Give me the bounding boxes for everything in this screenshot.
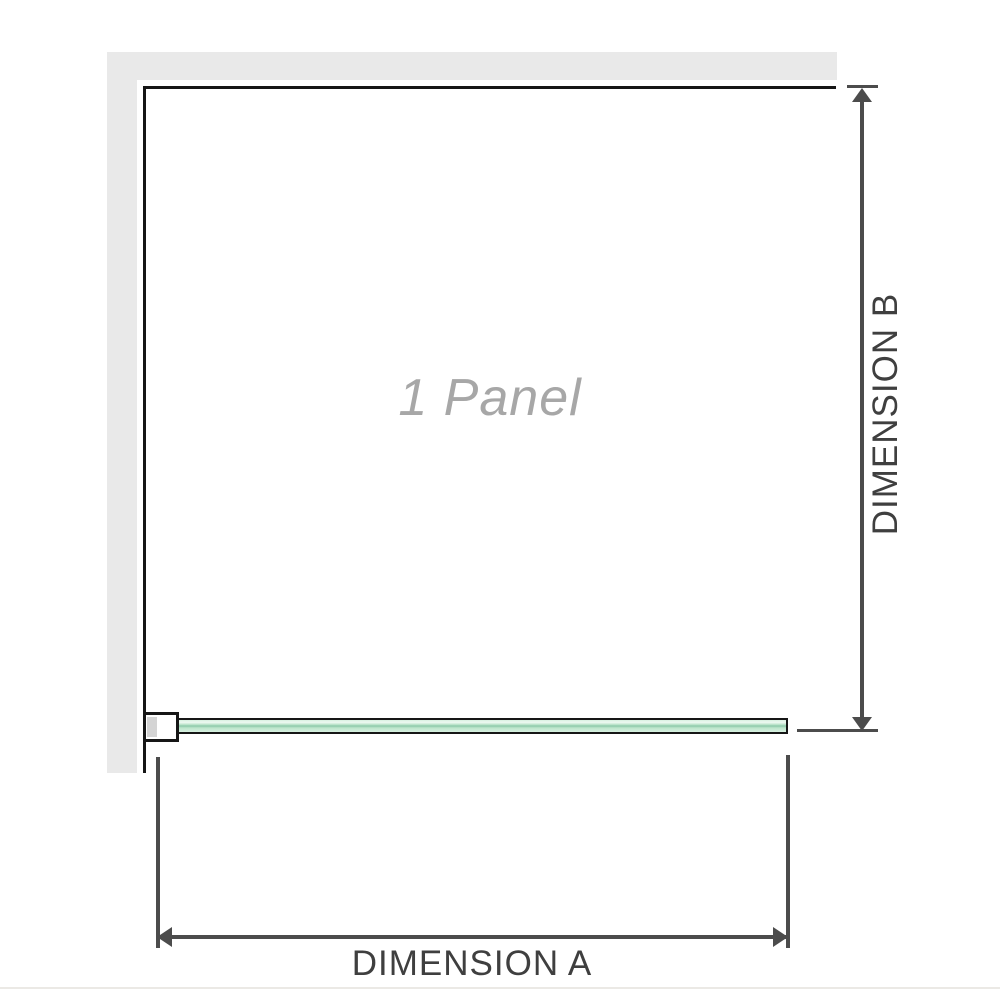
dimension-b-label: DIMENSION B — [866, 264, 906, 564]
enclosure-top-edge — [143, 86, 836, 89]
wall-horizontal-segment — [107, 52, 837, 80]
wall-vertical-segment — [107, 52, 137, 773]
enclosure-left-edge — [143, 86, 146, 773]
arrow-down-icon — [852, 717, 872, 731]
arrow-left-icon — [157, 927, 172, 947]
dimension-a-extension-left — [156, 757, 160, 948]
dimension-b-line — [860, 98, 864, 722]
baseline-divider — [0, 987, 1000, 989]
dimension-a-extension-right — [786, 755, 790, 948]
arrow-up-icon — [852, 88, 872, 102]
panel-dimension-diagram: 1 Panel DIMENSION B DIMENSION A — [0, 0, 1000, 1000]
glass-panel-bar — [157, 718, 788, 734]
bracket-pad — [147, 717, 157, 737]
arrow-right-icon — [773, 927, 788, 947]
dimension-a-label: DIMENSION A — [172, 944, 772, 984]
dimension-a-line — [166, 935, 786, 939]
panel-count-label: 1 Panel — [143, 368, 837, 428]
